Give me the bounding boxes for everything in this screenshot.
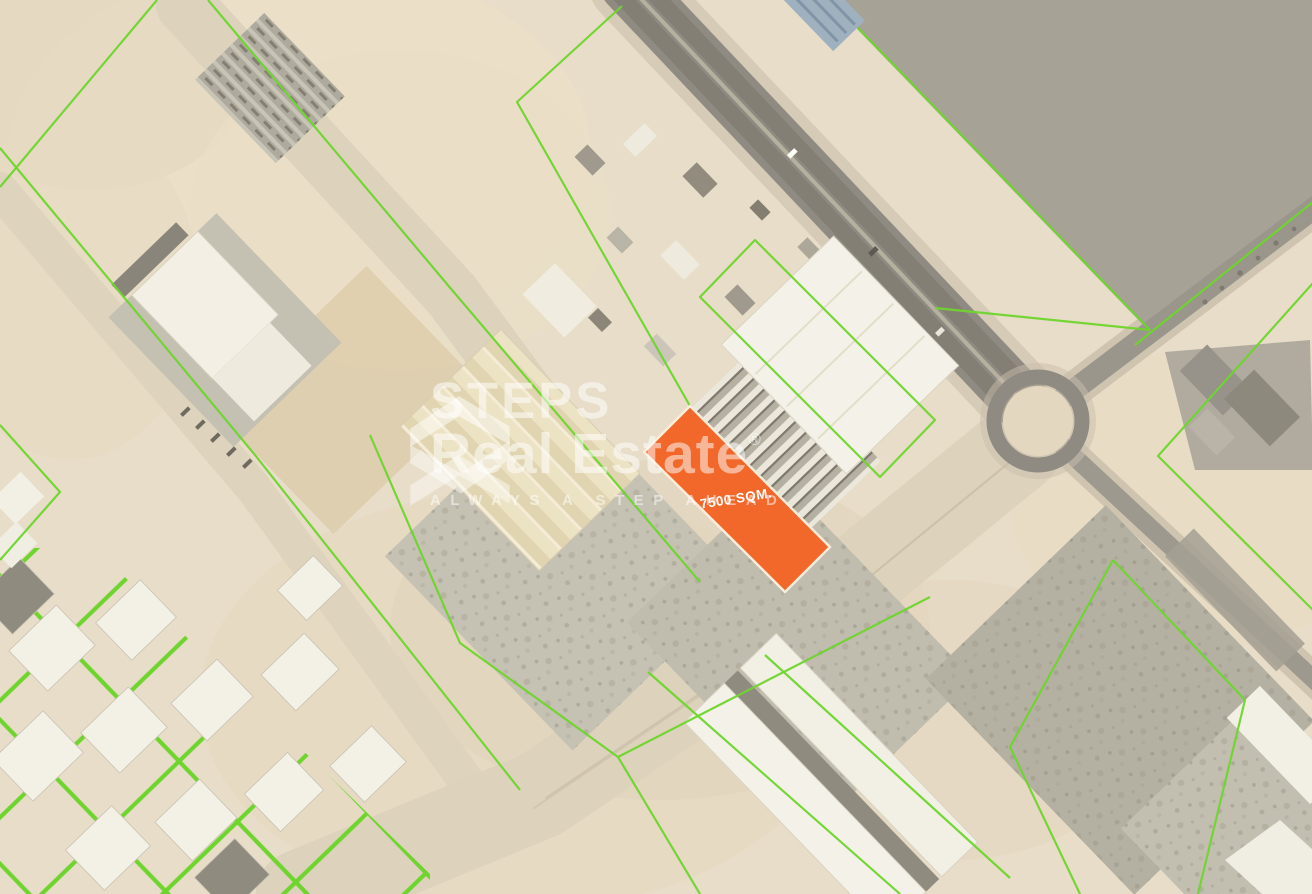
satellite-map-image: 7500 SQM. STEPS Real Estate® ALWAYS A ST… xyxy=(0,0,1312,894)
roundabout xyxy=(980,363,1096,479)
satellite-map: 7500 SQM. xyxy=(0,0,1312,894)
